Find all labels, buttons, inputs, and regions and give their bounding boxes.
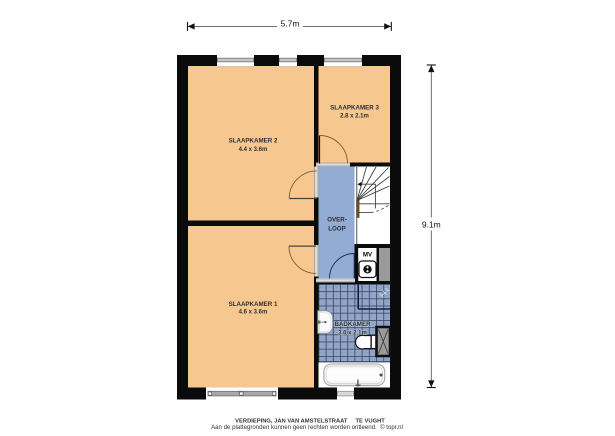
svg-text:5.7m: 5.7m	[281, 19, 300, 29]
svg-text:4.4 x 3.6m: 4.4 x 3.6m	[239, 147, 268, 153]
svg-text:OVER-: OVER-	[327, 217, 347, 224]
svg-text:9.1m: 9.1m	[422, 220, 441, 230]
svg-text:4.6 x 3.6m: 4.6 x 3.6m	[239, 310, 268, 316]
svg-text:Aan de plattegronden kunnen ge: Aan de plattegronden kunnen geen rechten…	[211, 424, 403, 431]
svg-text:BADKAMER: BADKAMER	[334, 321, 371, 328]
svg-text:SLAAPKAMER 3: SLAAPKAMER 3	[330, 105, 379, 112]
svg-text:SLAAPKAMER 2: SLAAPKAMER 2	[229, 137, 278, 144]
svg-text:LOOP: LOOP	[328, 226, 346, 233]
svg-text:SLAAPKAMER 1: SLAAPKAMER 1	[229, 301, 278, 308]
svg-text:MV: MV	[363, 253, 372, 259]
svg-text:2.8 x 2.1m: 2.8 x 2.1m	[340, 113, 369, 119]
